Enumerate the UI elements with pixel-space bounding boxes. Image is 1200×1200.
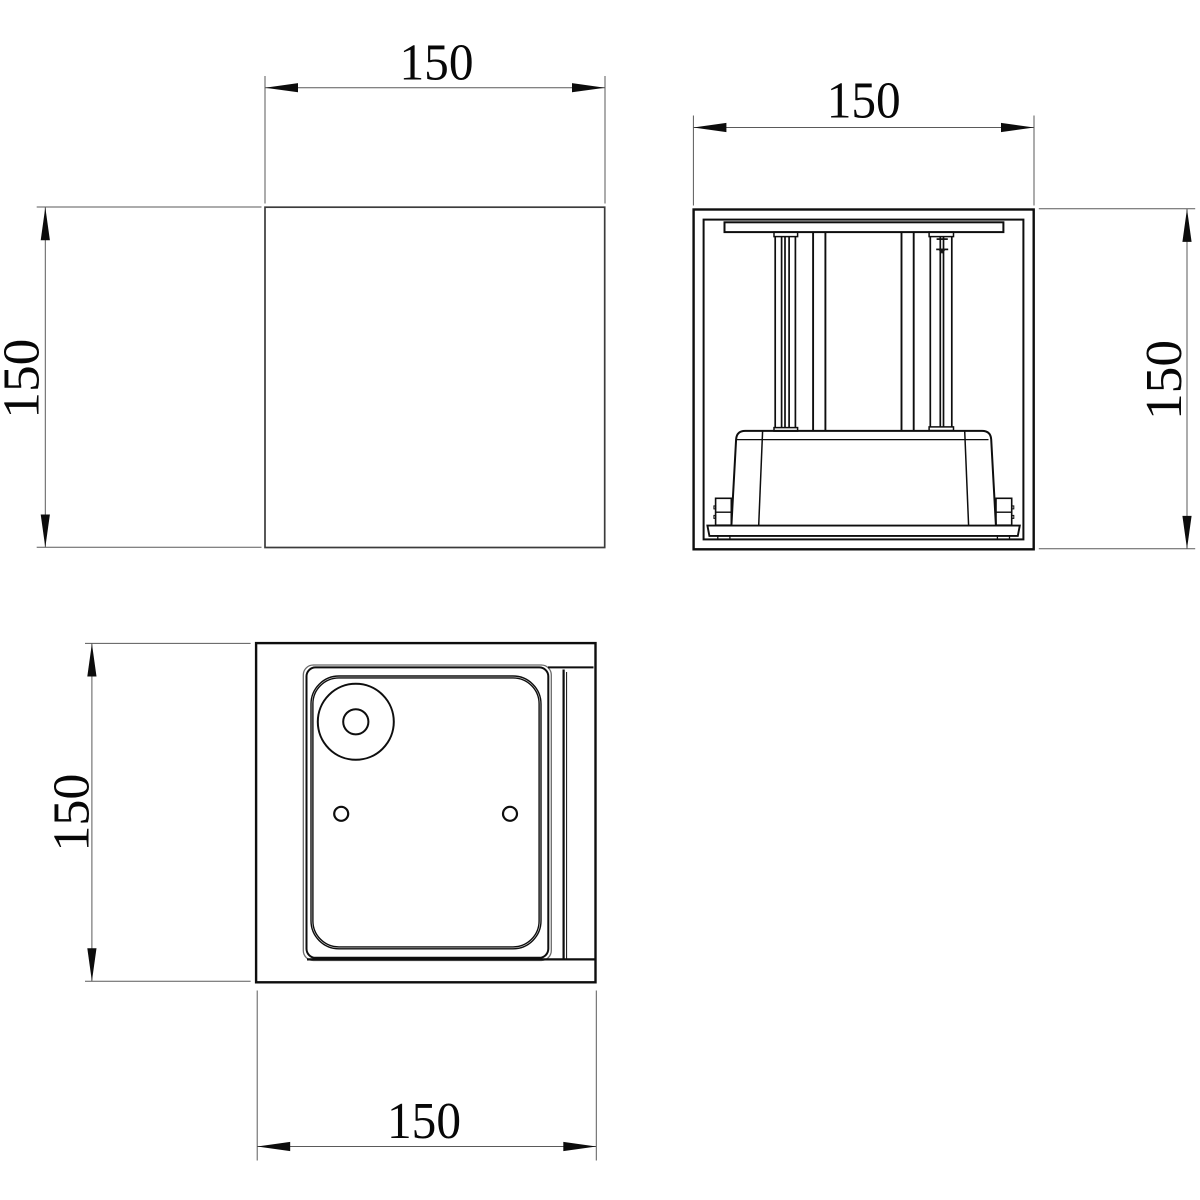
svg-text:150: 150 bbox=[1136, 340, 1193, 420]
svg-text:150: 150 bbox=[400, 35, 474, 92]
svg-text:150: 150 bbox=[0, 339, 51, 419]
svg-text:150: 150 bbox=[387, 1093, 461, 1150]
svg-text:150: 150 bbox=[43, 774, 100, 852]
svg-text:150: 150 bbox=[827, 73, 901, 130]
